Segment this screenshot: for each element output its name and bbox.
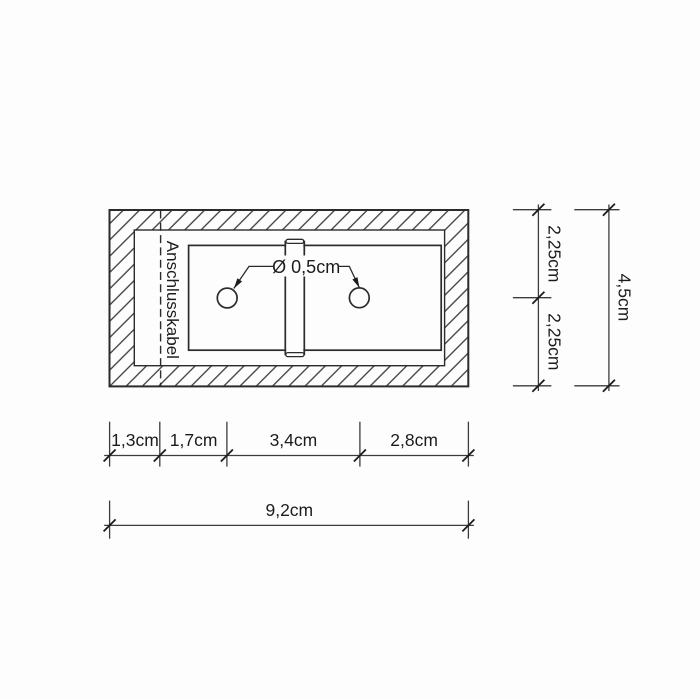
svg-text:3,4cm: 3,4cm: [270, 430, 318, 450]
svg-text:4,5cm: 4,5cm: [615, 274, 635, 322]
svg-text:1,3cm: 1,3cm: [111, 430, 159, 450]
svg-text:2,25cm: 2,25cm: [545, 313, 565, 370]
svg-text:Ø 0,5cm: Ø 0,5cm: [272, 257, 340, 277]
svg-text:2,8cm: 2,8cm: [390, 430, 438, 450]
svg-text:1,7cm: 1,7cm: [170, 430, 218, 450]
svg-text:Anschlusskabel: Anschlusskabel: [163, 241, 182, 359]
svg-text:9,2cm: 9,2cm: [265, 500, 313, 520]
svg-text:2,25cm: 2,25cm: [545, 225, 565, 282]
